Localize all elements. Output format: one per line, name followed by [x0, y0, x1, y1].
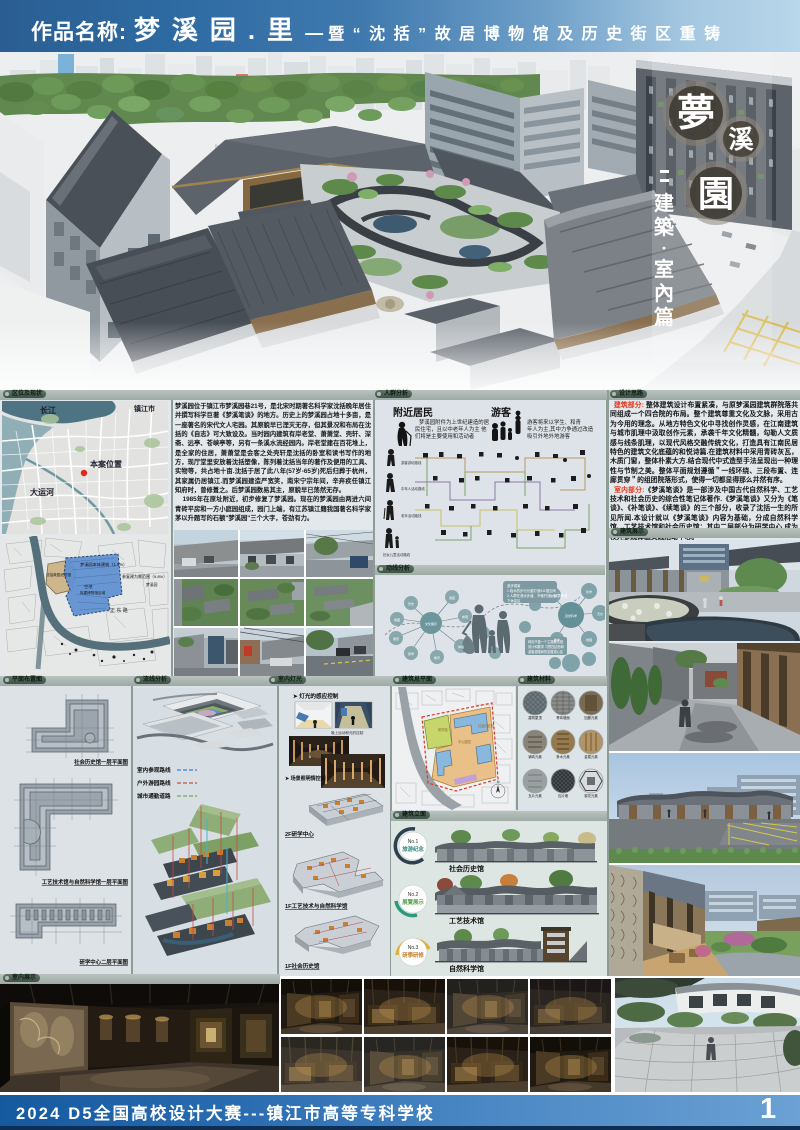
svg-text:游客道路和的发展重心区: 游客道路和的发展重心区 — [528, 649, 564, 654]
svg-text:2F研学中心: 2F研学中心 — [285, 830, 314, 838]
svg-text:篇: 篇 — [653, 305, 674, 329]
svg-text:梦溪园: 梦溪园 — [146, 582, 158, 587]
svg-text:老年活动路线: 老年活动路线 — [401, 513, 422, 518]
svg-text:室内参观路线: 室内参观路线 — [137, 766, 171, 774]
svg-text:文化展示: 文化展示 — [425, 621, 437, 626]
svg-text:室: 室 — [654, 257, 674, 281]
svg-text:No.3: No.3 — [408, 945, 419, 951]
svg-text:社会历史馆: 社会历史馆 — [448, 864, 484, 873]
svg-text:游客将来以学生、和青: 游客将来以学生、和青 — [527, 418, 582, 426]
svg-text:研學研修: 研學研修 — [402, 951, 424, 959]
svg-text:瓦片元素: 瓦片元素 — [528, 793, 542, 798]
svg-text:・: ・ — [659, 243, 670, 255]
svg-text:N: N — [497, 779, 500, 784]
svg-text:地理: 地理 — [586, 637, 592, 642]
svg-text:数学: 数学 — [554, 637, 560, 642]
svg-text:金属元素: 金属元素 — [584, 754, 598, 759]
svg-text:夢: 夢 — [677, 93, 715, 135]
svg-text:內: 內 — [654, 282, 674, 305]
svg-text:镇江市: 镇江市 — [134, 404, 155, 413]
svg-text:游园: 游园 — [449, 595, 455, 600]
svg-text:空地: 空地 — [84, 583, 93, 589]
svg-text:城市通勤道路: 城市通勤道路 — [137, 792, 171, 800]
svg-text:建筑屋顶: 建筑屋顶 — [528, 715, 542, 720]
svg-text:回廊元素: 回廊元素 — [584, 715, 598, 720]
svg-text:游客: 游客 — [491, 406, 512, 419]
svg-text:户外游园路线: 户外游园路线 — [137, 779, 171, 787]
svg-text:旅游纪念: 旅游纪念 — [402, 845, 424, 853]
svg-text:瓦片墙: 瓦片墙 — [558, 793, 569, 798]
svg-text:展覽展示: 展覽展示 — [402, 898, 424, 906]
svg-text:大运河: 大运河 — [30, 487, 54, 497]
svg-text:社会历史馆一层平面图: 社会历史馆一层平面图 — [73, 758, 129, 766]
svg-text:下休息区: 下休息区 — [507, 598, 521, 603]
svg-text:No.1: No.1 — [408, 839, 419, 845]
svg-text:工艺技术馆: 工艺技术馆 — [449, 916, 484, 925]
svg-text:自然科学馆: 自然科学馆 — [449, 964, 484, 973]
svg-text:参复建为需范围（9.8%）: 参复建为需范围（9.8%） — [122, 573, 167, 579]
svg-text:展览: 展览 — [393, 636, 399, 641]
svg-text:研学中心二层平面图: 研学中心二层平面图 — [79, 958, 128, 966]
svg-text:体验: 体验 — [458, 644, 464, 649]
svg-text:築: 築 — [653, 215, 675, 239]
svg-text:游步观景: 游步观景 — [507, 583, 521, 588]
svg-text:研学: 研学 — [408, 651, 414, 656]
svg-text:1F工艺技术与自然科学馆: 1F工艺技术与自然科学馆 — [285, 902, 348, 910]
svg-text:建: 建 — [654, 191, 674, 215]
svg-text:参观: 参观 — [462, 614, 468, 619]
svg-text:中年人活动路线: 中年人活动路线 — [401, 486, 425, 491]
svg-text:本案位置: 本案位置 — [89, 459, 122, 469]
svg-text:游客游玩路线: 游客游玩路线 — [401, 460, 422, 465]
svg-text:附近居民: 附近居民 — [393, 406, 433, 419]
svg-text:梦溪园本体建筑（1.9%）: 梦溪园本体建筑（1.9%） — [80, 561, 127, 568]
svg-text:们将是主要使用和活动者: 们将是主要使用和活动者 — [415, 432, 475, 440]
svg-text:历史: 历史 — [408, 601, 414, 606]
svg-text:工艺技术馆与自然科学馆一层平面图: 工艺技术馆与自然科学馆一层平面图 — [42, 878, 129, 886]
svg-text:拟建博物馆区域: 拟建博物馆区域 — [80, 590, 106, 595]
svg-text:No.2: No.2 — [408, 892, 419, 898]
svg-text:溪: 溪 — [728, 126, 754, 154]
svg-text:晚上运动和光的控制: 晚上运动和光的控制 — [331, 730, 364, 735]
svg-text:天文: 天文 — [597, 611, 603, 616]
svg-text:研学馆: 研学馆 — [438, 727, 448, 732]
svg-text:青砖墙面: 青砖墙面 — [556, 715, 570, 720]
svg-text:铺砖元素: 铺砖元素 — [528, 754, 542, 759]
svg-text:中心庭园: 中心庭园 — [458, 739, 471, 744]
svg-text:物理: 物理 — [550, 593, 556, 598]
svg-text:妇女儿童活动路线: 妇女儿童活动路线 — [383, 552, 411, 557]
svg-text:教育: 教育 — [434, 655, 440, 660]
svg-text:➤ 灯光的感应控制: ➤ 灯光的感应控制 — [293, 692, 339, 700]
svg-text:社会历史馆: 社会历史馆 — [478, 723, 494, 728]
svg-text:園: 園 — [698, 173, 734, 214]
svg-text:正 东 路: 正 东 路 — [110, 607, 128, 614]
svg-text:民住宅，且以中老年人为主 他: 民住宅，且以中老年人为主 他 — [415, 425, 487, 433]
svg-text:1.临水的步行长廊打造611慢空间: 1.临水的步行长廊打造611慢空间 — [507, 588, 557, 593]
svg-text:长江: 长江 — [40, 405, 56, 415]
svg-text:➤ 场景照明情控制: ➤ 场景照明情控制 — [285, 775, 326, 782]
svg-text:自然科学: 自然科学 — [565, 613, 577, 618]
svg-text:吸引外地外地游客: 吸引外地外地游客 — [527, 432, 571, 440]
svg-text:收藏: 收藏 — [394, 617, 400, 622]
svg-text:条木元素: 条木元素 — [556, 754, 570, 759]
svg-text:沈括故居纪念馆: 沈括故居纪念馆 — [46, 572, 72, 577]
svg-text:设计和要求 习惯四边形和: 设计和要求 习惯四边形和 — [528, 644, 564, 649]
svg-text:化学: 化学 — [586, 589, 592, 594]
svg-text:1F社会历史馆: 1F社会历史馆 — [285, 962, 320, 970]
svg-text:窗花元素: 窗花元素 — [584, 793, 598, 798]
svg-text:年人为主,其中力争通过改造: 年人为主,其中力争通过改造 — [527, 425, 594, 433]
svg-text:梦溪园附件为上世纪建造的居: 梦溪园附件为上世纪建造的居 — [419, 418, 490, 426]
svg-text:2.人群在滨水步道、不雅开放、林荫覆盖: 2.人群在滨水步道、不雅开放、林荫覆盖 — [507, 593, 568, 598]
